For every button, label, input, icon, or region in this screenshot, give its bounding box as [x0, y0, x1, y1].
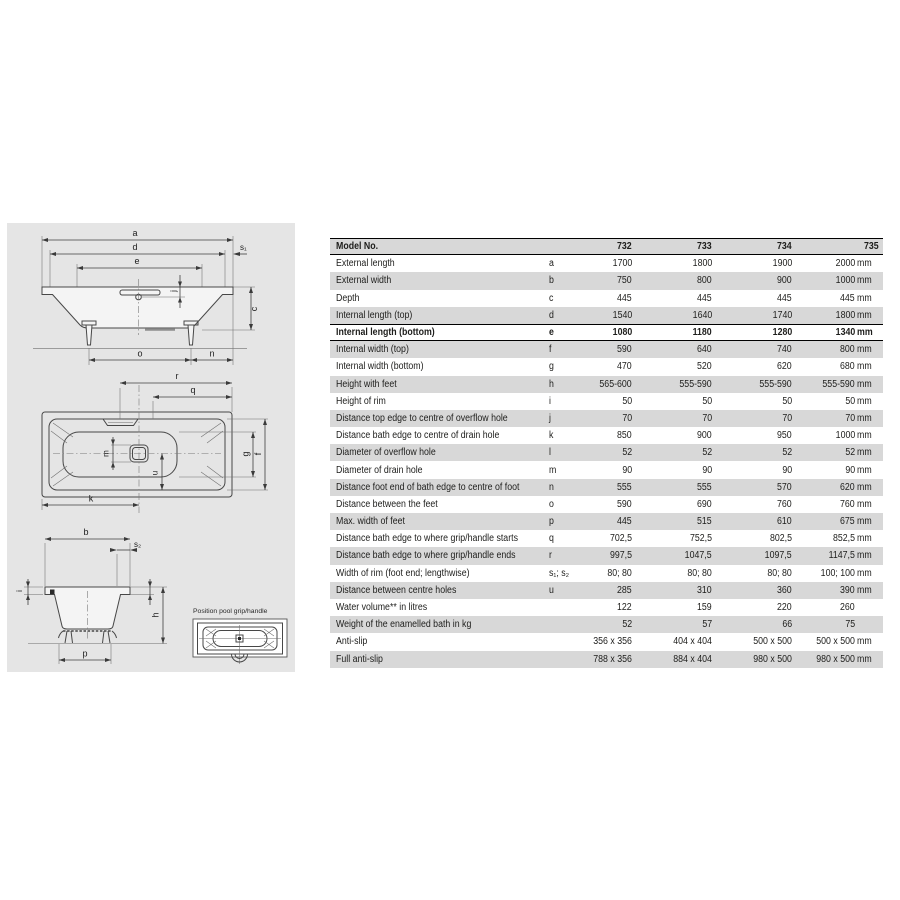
spec-table: Model No. 732 733 734 735 External lengt…	[330, 238, 883, 668]
row-value-733: 50	[636, 396, 716, 407]
row-value-735: 390mm	[796, 585, 883, 596]
table-row: External width b 750 800 900 1000mm	[330, 272, 883, 289]
column-header-model-733: 733	[636, 241, 716, 252]
row-value-734: 610	[716, 516, 796, 527]
row-value-733: 900	[636, 430, 716, 441]
table-row: Max. width of feet p 445 515 610 675mm	[330, 513, 883, 530]
row-value-733: 884 x 404	[636, 654, 716, 665]
row-letter	[542, 619, 576, 630]
row-letter: f	[542, 344, 576, 355]
row-label: Distance bath edge to centre of drain ho…	[330, 430, 542, 441]
dim-label-d: d	[132, 242, 137, 252]
table-row: Distance bath edge to where grip/handle …	[330, 530, 883, 547]
column-header-model-735: 735	[796, 241, 883, 252]
row-value-735: 52mm	[796, 447, 883, 458]
row-value-733: 159	[636, 602, 716, 613]
row-value-734: 500 x 500	[716, 636, 796, 647]
plan-view: r q k g f m u	[42, 371, 268, 513]
row-value-733: 57	[636, 619, 716, 630]
row-value-733: 1047,5	[636, 550, 716, 561]
row-label: Width of rim (foot end; lengthwise)	[330, 568, 542, 579]
row-letter: l	[542, 447, 576, 458]
row-value-735: 2000mm	[796, 258, 883, 269]
row-value-735: 500 x 500mm	[796, 636, 883, 647]
row-value-732: 1540	[576, 310, 636, 321]
row-value-733: 1640	[636, 310, 716, 321]
row-value-732: 555	[576, 482, 636, 493]
dim-label-s2: s₂	[134, 540, 141, 549]
row-label: Height with feet	[330, 379, 542, 390]
dim-label-s1: s₁	[240, 243, 247, 252]
row-value-733: 90	[636, 465, 716, 476]
row-letter: h	[542, 379, 576, 390]
row-value-733: 555	[636, 482, 716, 493]
row-value-733: 520	[636, 361, 716, 372]
row-value-732: 122	[576, 602, 636, 613]
row-value-735: 1147,5mm	[796, 550, 883, 561]
table-row: Height with feet h 565-600 555-590 555-5…	[330, 376, 883, 393]
table-row: Distance foot end of bath edge to centre…	[330, 479, 883, 496]
row-letter: b	[542, 275, 576, 286]
table-row: Depth c 445 445 445 445mm	[330, 290, 883, 307]
row-value-733: 70	[636, 413, 716, 424]
dim-label-e: e	[134, 256, 139, 266]
row-letter: n	[542, 482, 576, 493]
row-value-735: 980 x 500mm	[796, 654, 883, 665]
row-value-734: 50	[716, 396, 796, 407]
table-row: Internal width (top) f 590 640 740 800mm	[330, 341, 883, 358]
row-letter: q	[542, 533, 576, 544]
row-value-732: 702,5	[576, 533, 636, 544]
row-value-734: 900	[716, 275, 796, 286]
table-row: Distance bath edge to centre of drain ho…	[330, 427, 883, 444]
row-label: Max. width of feet	[330, 516, 542, 527]
row-value-735: 75	[796, 619, 883, 630]
row-value-734: 360	[716, 585, 796, 596]
row-value-735: 760mm	[796, 499, 883, 510]
row-value-732: 565-600	[576, 379, 636, 390]
row-value-732: 590	[576, 344, 636, 355]
row-value-735: 445mm	[796, 293, 883, 304]
row-value-732: 52	[576, 447, 636, 458]
row-value-734: 620	[716, 361, 796, 372]
row-value-735: 800mm	[796, 344, 883, 355]
table-row: Full anti-slip 788 x 356 884 x 404 980 x…	[330, 651, 883, 668]
table-row: Internal length (bottom) e 1080 1180 128…	[330, 324, 883, 341]
dim-label-j: j	[169, 290, 178, 293]
row-value-735: 100; 100mm	[796, 568, 883, 579]
row-label: External length	[330, 258, 542, 269]
row-letter	[542, 636, 576, 647]
row-value-735: 1800mm	[796, 310, 883, 321]
row-value-732: 590	[576, 499, 636, 510]
row-value-734: 445	[716, 293, 796, 304]
row-letter: o	[542, 499, 576, 510]
dim-label-u: u	[151, 471, 160, 475]
row-value-733: 555-590	[636, 379, 716, 390]
inset-caption: Position pool grip/handle	[193, 608, 268, 615]
row-letter: d	[542, 310, 576, 321]
row-value-733: 515	[636, 516, 716, 527]
table-row: Distance between centre holes u 285 310 …	[330, 582, 883, 599]
row-value-734: 80; 80	[716, 568, 796, 579]
row-label: Internal length (bottom)	[330, 327, 542, 338]
row-label: Internal width (bottom)	[330, 361, 542, 372]
table-body: External length a 1700 1800 1900 2000mm …	[330, 255, 883, 668]
grip-anchor-mark	[50, 590, 55, 595]
table-row: External length a 1700 1800 1900 2000mm	[330, 255, 883, 272]
dim-label-m: m	[102, 450, 111, 457]
row-value-733: 310	[636, 585, 716, 596]
row-label: Internal width (top)	[330, 344, 542, 355]
row-label: Distance foot end of bath edge to centre…	[330, 482, 542, 493]
row-value-733: 752,5	[636, 533, 716, 544]
row-label: Depth	[330, 293, 542, 304]
row-letter: m	[542, 465, 576, 476]
bathtub-dimension-drawings: a d e s₁ j c o	[7, 223, 295, 672]
row-value-733: 52	[636, 447, 716, 458]
row-letter: u	[542, 585, 576, 596]
row-value-732: 788 x 356	[576, 654, 636, 665]
row-letter: a	[542, 258, 576, 269]
row-value-734: 70	[716, 413, 796, 424]
row-letter: g	[542, 361, 576, 372]
row-value-732: 285	[576, 585, 636, 596]
row-value-732: 470	[576, 361, 636, 372]
row-value-734: 1740	[716, 310, 796, 321]
table-row: Diameter of drain hole m 90 90 90 90mm	[330, 461, 883, 478]
row-value-733: 800	[636, 275, 716, 286]
row-value-734: 1280	[716, 327, 796, 338]
row-value-732: 80; 80	[576, 568, 636, 579]
row-label: Distance between the feet	[330, 499, 542, 510]
row-value-734: 570	[716, 482, 796, 493]
row-letter: c	[542, 293, 576, 304]
dim-label-r: r	[176, 371, 179, 381]
row-label: Internal length (top)	[330, 310, 542, 321]
row-value-732: 445	[576, 293, 636, 304]
row-value-734: 950	[716, 430, 796, 441]
row-value-732: 90	[576, 465, 636, 476]
row-letter: i	[542, 396, 576, 407]
dim-label-o: o	[137, 349, 142, 359]
dim-label-f: f	[253, 452, 263, 455]
row-value-734: 66	[716, 619, 796, 630]
end-view: b s₂ h i p	[15, 527, 167, 664]
row-letter: p	[542, 516, 576, 527]
row-value-732: 1080	[576, 327, 636, 338]
table-row: Diameter of overflow hole l 52 52 52 52m…	[330, 444, 883, 461]
row-value-735: 852,5mm	[796, 533, 883, 544]
row-value-735: 1340mm	[796, 327, 883, 338]
grip-position-inset: Position pool grip/handle	[193, 608, 287, 664]
row-letter	[542, 602, 576, 613]
row-value-732: 850	[576, 430, 636, 441]
row-label: External width	[330, 275, 542, 286]
row-value-733: 445	[636, 293, 716, 304]
row-value-734: 220	[716, 602, 796, 613]
column-header-model: Model No.	[330, 241, 542, 252]
row-letter	[542, 654, 576, 665]
dim-label-a: a	[132, 228, 137, 238]
table-header-row: Model No. 732 733 734 735	[330, 238, 883, 255]
column-header-model-732: 732	[576, 241, 636, 252]
row-value-732: 750	[576, 275, 636, 286]
row-value-733: 690	[636, 499, 716, 510]
table-row: Distance bath edge to where grip/handle …	[330, 547, 883, 564]
row-value-732: 997,5	[576, 550, 636, 561]
row-value-732: 445	[576, 516, 636, 527]
column-header-model-734: 734	[716, 241, 796, 252]
row-letter: e	[542, 327, 576, 338]
table-row: Water volume** in litres 122 159 220 260	[330, 599, 883, 616]
row-value-734: 740	[716, 344, 796, 355]
dim-label-c: c	[249, 306, 259, 311]
row-value-734: 980 x 500	[716, 654, 796, 665]
row-value-734: 52	[716, 447, 796, 458]
row-value-733: 1180	[636, 327, 716, 338]
table-row: Height of rim i 50 50 50 50mm	[330, 393, 883, 410]
row-label: Water volume** in litres	[330, 602, 542, 613]
row-value-735: 70mm	[796, 413, 883, 424]
side-elevation-view: a d e s₁ j c o	[33, 228, 259, 365]
row-label: Distance between centre holes	[330, 585, 542, 596]
table-row: Anti-slip 356 x 356 404 x 404 500 x 500 …	[330, 633, 883, 650]
row-value-735: 680mm	[796, 361, 883, 372]
row-value-734: 760	[716, 499, 796, 510]
row-label: Distance bath edge to where grip/handle …	[330, 550, 542, 561]
row-value-735: 260	[796, 602, 883, 613]
dim-label-k: k	[89, 494, 94, 504]
row-value-732: 50	[576, 396, 636, 407]
row-label: Distance top edge to centre of overflow …	[330, 413, 542, 424]
row-value-735: 1000mm	[796, 275, 883, 286]
row-value-734: 1097,5	[716, 550, 796, 561]
row-label: Distance bath edge to where grip/handle …	[330, 533, 542, 544]
row-label: Full anti-slip	[330, 654, 542, 665]
row-letter: j	[542, 413, 576, 424]
dim-label-i: i	[15, 590, 24, 592]
row-label: Height of rim	[330, 396, 542, 407]
row-label: Anti-slip	[330, 636, 542, 647]
dim-label-p: p	[82, 649, 87, 659]
row-value-734: 1900	[716, 258, 796, 269]
row-label: Diameter of overflow hole	[330, 447, 542, 458]
row-value-733: 80; 80	[636, 568, 716, 579]
row-label: Weight of the enamelled bath in kg	[330, 619, 542, 630]
dim-label-q: q	[190, 385, 195, 395]
row-value-732: 1700	[576, 258, 636, 269]
row-value-735: 675mm	[796, 516, 883, 527]
row-value-735: 555-590mm	[796, 379, 883, 390]
row-letter: r	[542, 550, 576, 561]
row-value-735: 90mm	[796, 465, 883, 476]
row-value-735: 50mm	[796, 396, 883, 407]
row-value-732: 356 x 356	[576, 636, 636, 647]
row-value-734: 802,5	[716, 533, 796, 544]
row-value-733: 404 x 404	[636, 636, 716, 647]
table-row: Weight of the enamelled bath in kg 52 57…	[330, 616, 883, 633]
row-value-735: 1000mm	[796, 430, 883, 441]
row-letter: s₁; s₂	[542, 568, 576, 579]
row-value-734: 90	[716, 465, 796, 476]
row-letter: k	[542, 430, 576, 441]
row-value-734: 555-590	[716, 379, 796, 390]
row-value-732: 52	[576, 619, 636, 630]
dim-label-g: g	[241, 451, 251, 456]
table-row: Width of rim (foot end; lengthwise) s₁; …	[330, 565, 883, 582]
table-row: Internal length (top) d 1540 1640 1740 1…	[330, 307, 883, 324]
technical-drawing-panel: a d e s₁ j c o	[7, 223, 295, 672]
table-row: Distance between the feet o 590 690 760 …	[330, 496, 883, 513]
row-value-733: 1800	[636, 258, 716, 269]
table-row: Internal width (bottom) g 470 520 620 68…	[330, 358, 883, 375]
row-value-735: 620mm	[796, 482, 883, 493]
row-value-733: 640	[636, 344, 716, 355]
dim-label-h: h	[151, 612, 161, 617]
row-value-732: 70	[576, 413, 636, 424]
table-row: Distance top edge to centre of overflow …	[330, 410, 883, 427]
dim-label-n: n	[209, 349, 214, 359]
dim-label-b: b	[83, 527, 88, 537]
row-label: Diameter of drain hole	[330, 465, 542, 476]
